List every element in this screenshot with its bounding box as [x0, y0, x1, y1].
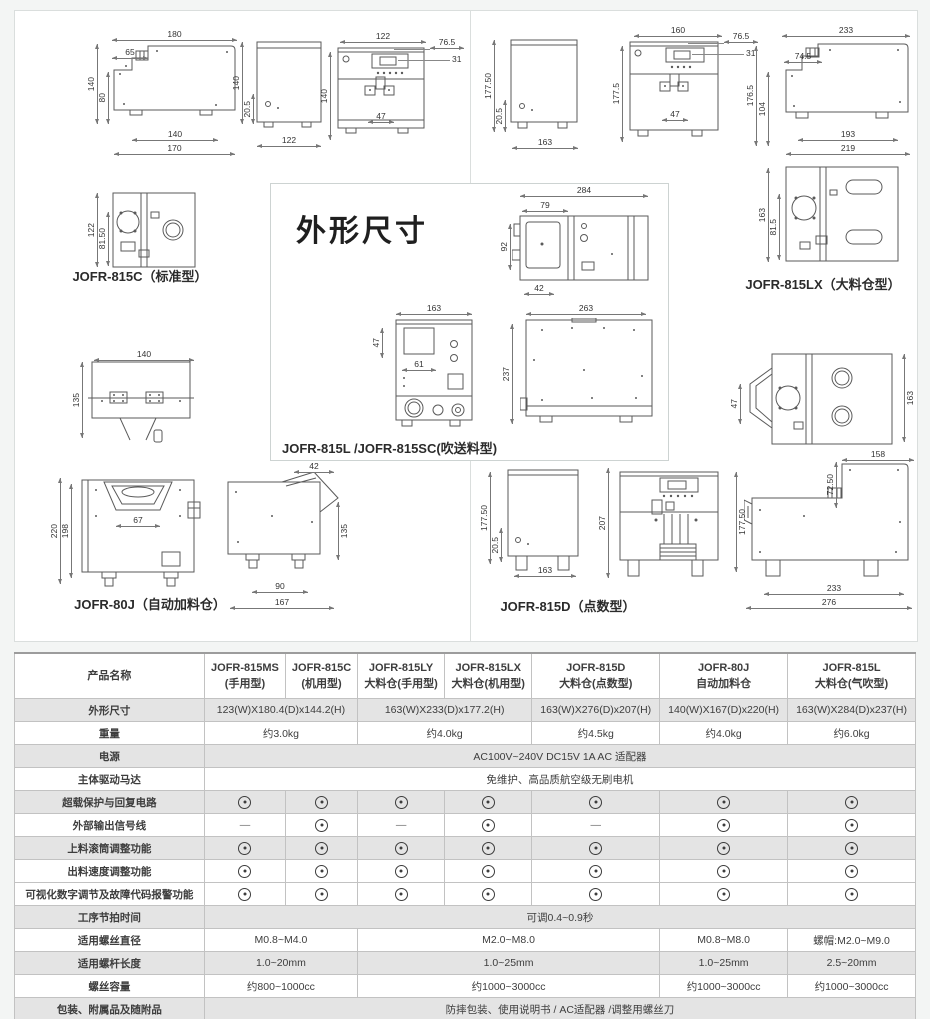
feature-dot-icon	[395, 842, 408, 855]
spec-cell	[660, 791, 788, 814]
row-label: 出料速度调整功能	[15, 860, 205, 883]
row-label: 电源	[15, 745, 205, 768]
col-header-model: JOFR-815C(机用型)	[286, 653, 358, 699]
col-header-model: JOFR-815D大料仓(点数型)	[532, 653, 660, 699]
table-row: 电源AC100V~240V DC15V 1A AC 适配器	[15, 745, 916, 768]
feature-dot-icon	[238, 796, 251, 809]
feature-dot-icon	[482, 865, 495, 878]
spec-cell	[445, 814, 532, 837]
spec-cell	[445, 860, 532, 883]
view-hinge-top: 140 135	[70, 348, 222, 448]
view-815lx-side: 233 74.5 176.5 104 193 219	[742, 24, 918, 170]
label-815lx: JOFR-815LX（大料仓型）	[738, 274, 908, 293]
table-row: 外部输出信号线———	[15, 814, 916, 837]
feature-dot-icon	[845, 842, 858, 855]
col-header-model: JOFR-80J自动加料仓	[660, 653, 788, 699]
spec-cell	[358, 837, 445, 860]
label-80j: JOFR-80J（自动加料仓）	[40, 594, 260, 613]
row-label: 可视化数字调节及故障代码报警功能	[15, 883, 205, 906]
feature-dot-icon	[315, 865, 328, 878]
feature-dot-icon	[395, 796, 408, 809]
spec-cell	[286, 814, 358, 837]
spec-cell: 约4.0kg	[660, 722, 788, 745]
feature-dot-icon	[238, 842, 251, 855]
spec-cell	[660, 860, 788, 883]
feature-dot-icon	[717, 819, 730, 832]
spec-cell	[660, 814, 788, 837]
table-header-row: 产品名称JOFR-815MS(手用型)JOFR-815C(机用型)JOFR-81…	[15, 653, 916, 699]
page-title: 外形尺寸	[296, 206, 428, 250]
view-815c-front-drawing	[336, 46, 428, 147]
row-label: 超载保护与回复电路	[15, 791, 205, 814]
col-header-model: JOFR-815L大料仓(气吹型)	[788, 653, 916, 699]
row-label: 上料滚筒调整功能	[15, 837, 205, 860]
spec-cell: 约3.0kg	[204, 722, 357, 745]
table-row: 包装、附属品及随附品防摔包装、使用说明书 / AC适配器 /调整用螺丝刀	[15, 998, 916, 1019]
spec-sheet: 外形尺寸 180 65 140 80 140 170 140 20.5	[0, 0, 930, 1019]
spec-cell	[204, 837, 285, 860]
col-header-model: JOFR-815LX大料仓(机用型)	[445, 653, 532, 699]
spec-cell: 1.0~25mm	[358, 952, 660, 975]
spec-cell: 1.0~20mm	[204, 952, 357, 975]
spec-cell: M0.8~M4.0	[204, 929, 357, 952]
feature-dot-icon	[845, 819, 858, 832]
feature-dot-icon	[315, 796, 328, 809]
view-815l-front: 163 47 61	[362, 300, 494, 442]
spec-cell	[286, 860, 358, 883]
spec-cell: —	[204, 814, 285, 837]
table-row: 上料滚筒调整功能	[15, 837, 916, 860]
view-815l-side: 284 79 92 42	[498, 184, 660, 298]
spec-table: 产品名称JOFR-815MS(手用型)JOFR-815C(机用型)JOFR-81…	[14, 652, 916, 1019]
spec-cell: 约1000~3000cc	[358, 975, 660, 998]
spec-cell: 约1000~3000cc	[788, 975, 916, 998]
table-row: 主体驱动马达免维护、高品质航空级无刷电机	[15, 768, 916, 791]
feature-dot-icon	[315, 819, 328, 832]
spec-cell	[788, 837, 916, 860]
feature-dot-icon	[589, 796, 602, 809]
spec-cell	[358, 791, 445, 814]
spec-cell: 1.0~25mm	[660, 952, 788, 975]
row-label: 螺丝容量	[15, 975, 205, 998]
view-815d-front-drawing	[616, 466, 728, 591]
view-80j-front: 220 198 67	[48, 470, 218, 592]
spec-cell	[204, 791, 285, 814]
view-815c-front: 122 140 47 76.5 31	[318, 28, 470, 168]
spec-cell: —	[532, 814, 660, 837]
feature-dot-icon	[395, 865, 408, 878]
view-80j-side-drawing	[226, 472, 344, 579]
spec-cell: 约1000~3000cc	[660, 975, 788, 998]
row-label: 适用螺杆长度	[15, 952, 205, 975]
view-815c-top: 122 81.50	[85, 190, 205, 272]
view-815d-side: 158 72.50 233 276	[738, 448, 918, 614]
view-815l-top-drawing	[748, 352, 898, 453]
view-815l-top: 47 163	[728, 348, 918, 452]
spec-cell: 163(W)X284(D)x237(H)	[788, 699, 916, 722]
feature-dot-icon	[238, 888, 251, 901]
spec-cell	[358, 860, 445, 883]
col-header-model: JOFR-815MS(手用型)	[204, 653, 285, 699]
spec-cell: 123(W)X180.4(D)x144.2(H)	[204, 699, 357, 722]
spec-cell: 约4.5kg	[532, 722, 660, 745]
feature-dot-icon	[717, 888, 730, 901]
view-815d-back-drawing	[506, 468, 584, 579]
spec-cell	[788, 791, 916, 814]
view-815l-side-drawing	[512, 214, 654, 289]
spec-cell	[788, 814, 916, 837]
spec-cell: 约4.0kg	[358, 722, 532, 745]
spec-cell	[445, 837, 532, 860]
spec-cell	[204, 883, 285, 906]
view-80j-side: 42 135 90 167	[218, 462, 354, 614]
spec-cell: AC100V~240V DC15V 1A AC 适配器	[204, 745, 915, 768]
spec-cell	[445, 883, 532, 906]
feature-dot-icon	[845, 865, 858, 878]
feature-dot-icon	[482, 888, 495, 901]
spec-cell: 163(W)X233(D)x177.2(H)	[358, 699, 532, 722]
spec-cell	[286, 883, 358, 906]
feature-dot-icon	[845, 796, 858, 809]
table-row: 超载保护与回复电路	[15, 791, 916, 814]
table-row: 外形尺寸123(W)X180.4(D)x144.2(H)163(W)X233(D…	[15, 699, 916, 722]
view-815l-side2: 263 237	[498, 300, 660, 442]
spec-cell: 163(W)X276(D)x207(H)	[532, 699, 660, 722]
row-label: 适用螺丝直径	[15, 929, 205, 952]
feature-dash: —	[590, 819, 601, 831]
table-row: 工序节拍时间可调0.4~0.9秒	[15, 906, 916, 929]
spec-cell	[532, 860, 660, 883]
view-815c-back-drawing	[256, 40, 324, 137]
spec-cell: 140(W)X167(D)x220(H)	[660, 699, 788, 722]
spec-cell: 免维护、高品质航空级无刷电机	[204, 768, 915, 791]
row-label: 工序节拍时间	[15, 906, 205, 929]
spec-cell	[445, 791, 532, 814]
spec-cell: 2.5~20mm	[788, 952, 916, 975]
row-label: 外形尺寸	[15, 699, 205, 722]
col-header-model: JOFR-815LY大料仓(手用型)	[358, 653, 445, 699]
spec-cell: —	[358, 814, 445, 837]
spec-cell: M0.8~M8.0	[660, 929, 788, 952]
row-label: 包装、附属品及随附品	[15, 998, 205, 1019]
feature-dot-icon	[717, 796, 730, 809]
view-815c-top-drawing	[111, 192, 199, 275]
view-815d-front: 207 177.50	[596, 460, 754, 598]
table-row: 螺丝容量约800~1000cc约1000~3000cc约1000~3000cc约…	[15, 975, 916, 998]
feature-dot-icon	[482, 796, 495, 809]
view-hinge-top-drawing	[88, 360, 198, 451]
spec-cell	[532, 883, 660, 906]
view-815d-back: 177.50 20.5 163	[478, 462, 598, 594]
view-815c-back: 140 20.5 122	[230, 28, 330, 168]
feature-dot-icon	[589, 888, 602, 901]
view-815lx-back-drawing	[509, 38, 581, 139]
feature-dot-icon	[717, 842, 730, 855]
feature-dot-icon	[395, 888, 408, 901]
feature-dot-icon	[589, 842, 602, 855]
view-815l-front-drawing	[392, 318, 478, 437]
spec-cell: M2.0~M8.0	[358, 929, 660, 952]
row-label: 外部输出信号线	[15, 814, 205, 837]
feature-dot-icon	[315, 842, 328, 855]
table-row: 出料速度调整功能	[15, 860, 916, 883]
table-row: 重量约3.0kg约4.0kg约4.5kg约4.0kg约6.0kg	[15, 722, 916, 745]
label-815l: JOFR-815L /JOFR-815SC(吹送料型)	[282, 438, 502, 457]
row-label: 重量	[15, 722, 205, 745]
spec-cell: 约6.0kg	[788, 722, 916, 745]
spec-cell: 可调0.4~0.9秒	[204, 906, 915, 929]
feature-dot-icon	[589, 865, 602, 878]
spec-cell	[532, 837, 660, 860]
table-row: 适用螺杆长度1.0~20mm1.0~25mm1.0~25mm2.5~20mm	[15, 952, 916, 975]
feature-dot-icon	[717, 865, 730, 878]
view-815lx-back: 177.50 20.5 163	[482, 28, 597, 168]
spec-cell	[660, 883, 788, 906]
feature-dot-icon	[482, 842, 495, 855]
view-815c-side: 180 65 140 80 140 170	[85, 28, 245, 168]
feature-dot-icon	[315, 888, 328, 901]
feature-dash: —	[396, 819, 407, 831]
row-label: 主体驱动马达	[15, 768, 205, 791]
feature-dot-icon	[845, 888, 858, 901]
view-80j-front-drawing	[76, 476, 208, 595]
table-row: 可视化数字调节及故障代码报警功能	[15, 883, 916, 906]
label-815c: JOFR-815C（标准型）	[50, 266, 230, 285]
spec-cell	[286, 837, 358, 860]
spec-cell	[286, 791, 358, 814]
spec-cell	[204, 860, 285, 883]
spec-cell	[532, 791, 660, 814]
spec-cell: 约800~1000cc	[204, 975, 357, 998]
feature-dot-icon	[238, 865, 251, 878]
view-815lx-top: 163 81.5	[756, 166, 916, 266]
view-815lx-front-drawing	[628, 40, 724, 151]
view-815lx-top-drawing	[784, 166, 902, 269]
spec-cell	[660, 837, 788, 860]
col-header-product: 产品名称	[15, 653, 205, 699]
feature-dash: —	[240, 819, 251, 831]
table-row: 适用螺丝直径M0.8~M4.0M2.0~M8.0M0.8~M8.0螺帽:M2.0…	[15, 929, 916, 952]
spec-cell: 螺帽:M2.0~M9.0	[788, 929, 916, 952]
spec-cell: 防摔包装、使用说明书 / AC适配器 /调整用螺丝刀	[204, 998, 915, 1019]
label-815d: JOFR-815D（点数型）	[478, 596, 658, 615]
spec-cell	[788, 860, 916, 883]
feature-dot-icon	[482, 819, 495, 832]
view-815l-side2-drawing	[520, 318, 660, 439]
spec-cell	[358, 883, 445, 906]
spec-cell	[788, 883, 916, 906]
